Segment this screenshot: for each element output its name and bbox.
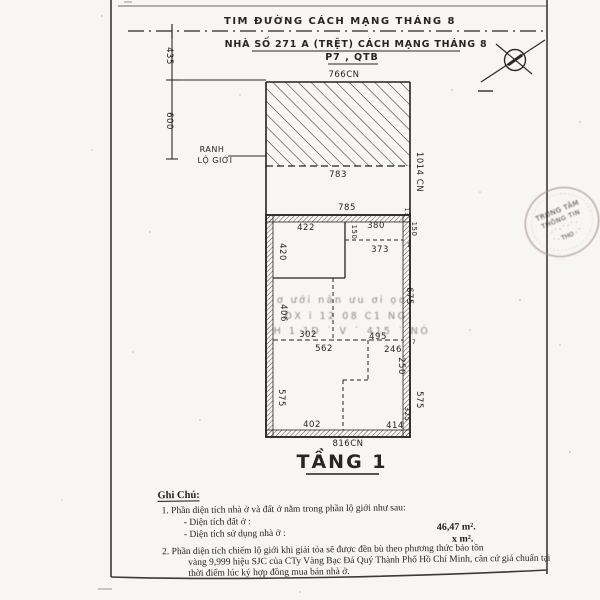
- dimension-label: 150: [410, 222, 418, 237]
- bleedthrough-line: ĐX i 12 08 C1 NG: [285, 311, 408, 322]
- dimension-label: 325: [403, 407, 411, 422]
- dimension-label: 420: [277, 243, 287, 261]
- official-stamp: TRUNG TÂM THÔNG TIN · ˙ · ˙ · ˙ · ˙ · TH…: [515, 177, 600, 268]
- dimension-label: 766CN: [328, 70, 359, 80]
- cadastral-drawing-scan: TIM ĐƯỜNG CÁCH MẠNG THÁNG 8 NHÀ SỐ 271 A…: [0, 0, 600, 600]
- dimension-label: 246: [384, 345, 402, 355]
- dimension-label: 250: [396, 357, 406, 375]
- dimension-label: 785: [338, 203, 356, 213]
- dimension-label: 373: [371, 245, 389, 255]
- dimension-label: RANH: [200, 145, 225, 154]
- dimension-label: 414: [386, 421, 404, 431]
- note-1b: - Diện tích sử dụng nhà ở :: [184, 529, 286, 540]
- dimension-label: 783: [329, 170, 347, 180]
- notes-section: Ghi Chú: 1. Phần diện tích nhà ở và đất …: [157, 486, 551, 580]
- note-1a: - Diện tích đất ở :: [184, 516, 251, 528]
- dimension-label: 7: [412, 339, 416, 346]
- dimension-label: 1: [407, 242, 411, 249]
- floor-title-label: TẦNG 1: [297, 447, 388, 473]
- bleedthrough-line: ơ ưới nản ưu ơi ọo: [277, 295, 407, 306]
- note-2-line3: thời điểm lúc ký hợp đồng mua bán nhà ở.: [188, 566, 349, 579]
- dimension-label: 150: [350, 225, 358, 240]
- dimension-label: 380: [367, 221, 385, 231]
- bleedthrough-line: H 1 1D ˙ V ˙ 415 ˙ NÓ: [274, 325, 431, 337]
- dimension-label: 600: [164, 112, 174, 130]
- setback-dimension-lines: [166, 31, 266, 159]
- bleedthrough-text: ơ ưới nản ưu ơi ọoĐX i 12 08 C1 NGH 1 1D…: [274, 295, 431, 337]
- area-value-1: 46,47 m².: [437, 521, 476, 532]
- address-line2: P7 , QTB: [325, 52, 379, 63]
- dimension-label: 575: [276, 389, 286, 407]
- note-1: 1. Phần diện tích nhà ở và đất ở nằm tro…: [162, 502, 406, 516]
- address-line1: NHÀ SỐ 271 A (TRỆT) CÁCH MẠNG THÁNG 8: [225, 37, 488, 50]
- dimension-label: 1014 CN: [414, 152, 424, 192]
- address-heading: NHÀ SỐ 271 A (TRỆT) CÁCH MẠNG THÁNG 8 P7…: [225, 37, 488, 64]
- dimension-label: 575: [414, 391, 424, 409]
- dimension-label: LỘ GIỚI: [197, 154, 232, 165]
- notes-title: Ghi Chú:: [157, 490, 199, 502]
- dimension-label: 402: [303, 420, 321, 430]
- dimension-label: 435: [164, 47, 174, 65]
- dimension-label: 13: [403, 208, 410, 217]
- north-compass-icon: [478, 40, 545, 91]
- floor-title: TẦNG 1: [297, 447, 388, 474]
- dimension-label: 816CN: [332, 439, 363, 449]
- dimension-label: 422: [297, 223, 315, 233]
- dimension-label: 562: [315, 344, 333, 354]
- street-name-label: TIM ĐƯỜNG CÁCH MẠNG THÁNG 8: [224, 14, 456, 27]
- road-reserve-hatched-block: [266, 82, 410, 215]
